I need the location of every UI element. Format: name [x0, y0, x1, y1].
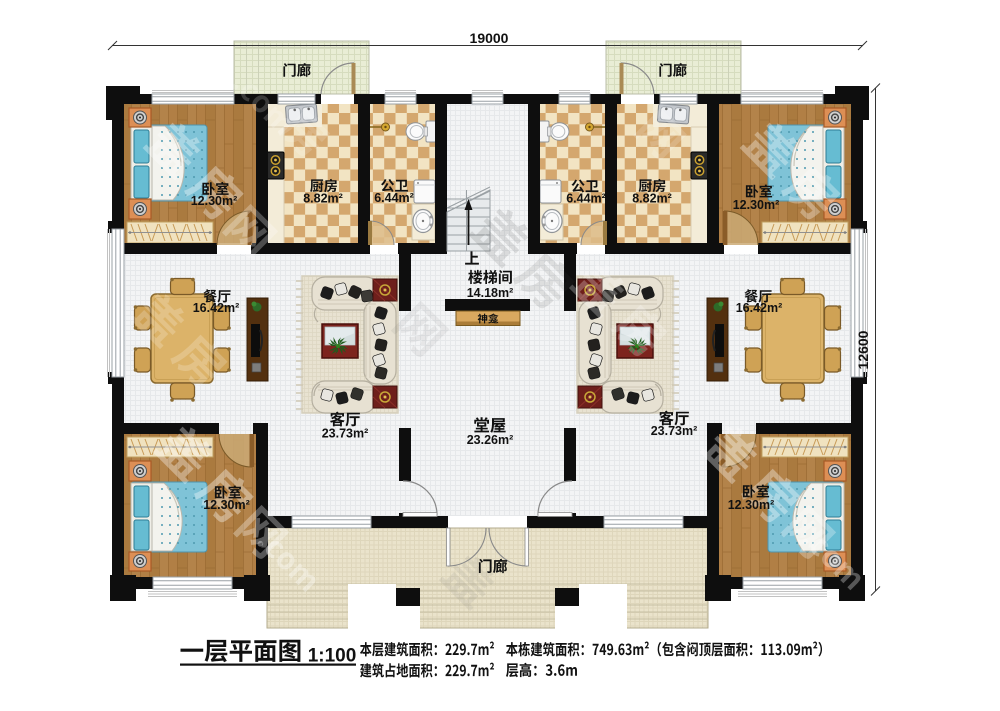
svg-text:16.42m²: 16.42m² [193, 301, 240, 315]
svg-text:12.30m²: 12.30m² [191, 194, 238, 208]
svg-text:6.44m²: 6.44m² [566, 192, 606, 206]
svg-text:23.26m²: 23.26m² [467, 433, 514, 447]
svg-text:14.18m²: 14.18m² [467, 286, 514, 300]
svg-text:12.30m²: 12.30m² [203, 498, 250, 512]
svg-text:19000: 19000 [470, 30, 509, 46]
svg-text:23.73m²: 23.73m² [322, 427, 369, 441]
svg-text:8.82m²: 8.82m² [303, 192, 343, 206]
svg-text:12600: 12600 [855, 330, 871, 369]
svg-text:12.30m²: 12.30m² [728, 498, 775, 512]
svg-text:23.73m²: 23.73m² [651, 424, 698, 438]
svg-text:16.42m²: 16.42m² [736, 301, 783, 315]
svg-text:8.82m²: 8.82m² [632, 192, 672, 206]
svg-text:1:100: 1:100 [308, 646, 357, 667]
svg-text:12.30m²: 12.30m² [733, 198, 780, 212]
svg-text:6.44m²: 6.44m² [374, 191, 414, 205]
